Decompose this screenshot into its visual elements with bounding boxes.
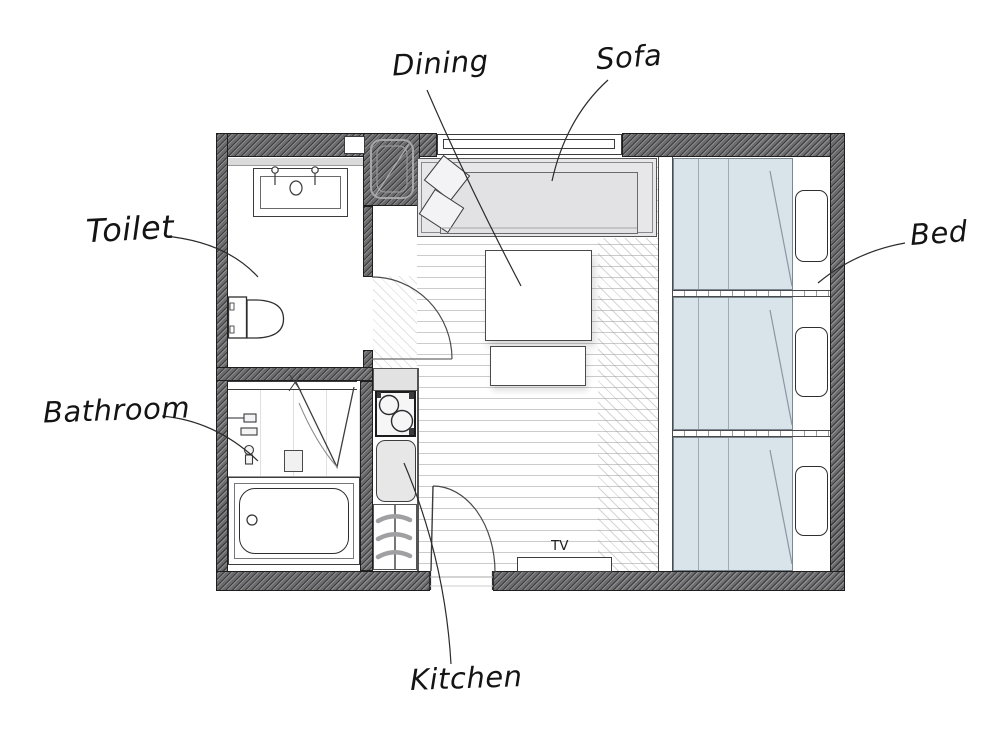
sofa-seat (440, 172, 638, 234)
floor-plan: TV (0, 0, 1000, 747)
dining-table (485, 250, 592, 341)
wall-bottom-left (216, 571, 430, 591)
kitchen-label: Kitchen (410, 662, 523, 695)
small-window (344, 136, 365, 154)
kitchen-sink (376, 440, 416, 502)
bed-pillow-2 (795, 327, 828, 397)
wall-left (216, 133, 228, 591)
entry-hall-floor (373, 276, 417, 368)
shelf-pole (394, 505, 396, 569)
bed-divider-2 (673, 430, 830, 437)
wall-right (830, 133, 845, 591)
vanity-backsplash (228, 158, 363, 166)
dining-label: Dining (391, 46, 489, 80)
kitchen-edge-line (417, 368, 419, 571)
tv-unit (517, 557, 612, 572)
main-window-inner-frame (443, 139, 615, 149)
bed-duvet-3 (673, 437, 793, 571)
kitchen-counter (373, 368, 418, 391)
bed-side-rail (658, 157, 673, 571)
utility-shaft (363, 133, 420, 206)
bathroom-label: Bathroom (43, 393, 191, 427)
toilet-label: Toilet (85, 211, 175, 248)
dining-bench (490, 346, 586, 386)
vanity-basin (260, 176, 341, 209)
wall-top-right (622, 133, 845, 157)
bed-pillow-3 (795, 466, 828, 536)
bed-label: Bed (909, 217, 969, 250)
shoe-shelf (373, 504, 417, 570)
bed-divider-1 (673, 290, 830, 297)
stove (375, 391, 416, 437)
bed-pillow-1 (795, 190, 828, 262)
bedside-floor-strip (598, 238, 658, 571)
partition-toilet-right-upper (363, 206, 373, 277)
wall-bottom-right (493, 571, 845, 591)
bathtub-inner (239, 488, 349, 554)
bed-duvet-2 (673, 297, 793, 430)
partition-toilet-bathroom (216, 367, 373, 381)
bath-stool (284, 450, 303, 472)
sofa-label: Sofa (595, 41, 663, 75)
bathroom-door-track[interactable] (228, 381, 357, 390)
partition-bathroom-right (360, 381, 373, 571)
tv-label: TV (551, 540, 568, 554)
bed-duvet-1 (673, 158, 793, 290)
